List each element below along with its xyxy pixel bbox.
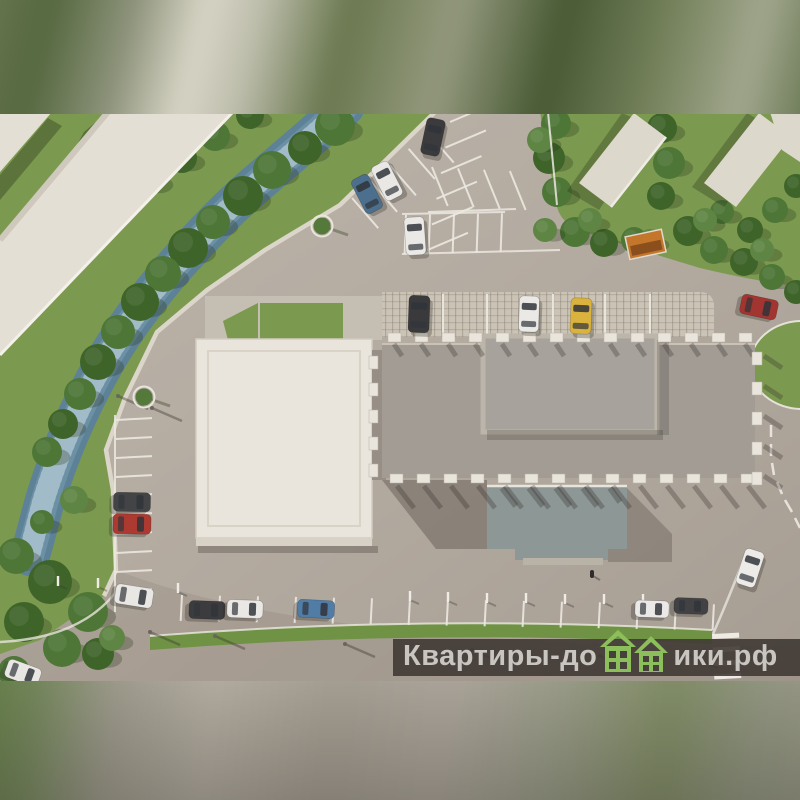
car-rear-window	[118, 495, 124, 509]
stall-line	[713, 604, 714, 630]
balcony-tab	[579, 474, 592, 483]
blurred-bottom-edge	[0, 681, 800, 800]
balcony-tab	[660, 474, 673, 483]
tree-highlight	[787, 282, 799, 294]
tree-highlight	[173, 232, 193, 252]
tree-highlight	[3, 542, 21, 560]
car-windshield	[249, 603, 256, 616]
car-windshield	[694, 601, 701, 612]
ring-tree	[314, 218, 331, 235]
car-windshield	[320, 603, 328, 616]
tree-highlight	[704, 239, 718, 253]
tree-highlight	[9, 606, 29, 626]
tree-highlight	[581, 210, 593, 222]
watermark-logo-houses-icon	[598, 624, 672, 676]
tree-highlight	[105, 318, 122, 335]
balcony-tab	[369, 383, 378, 396]
stall-line	[501, 213, 502, 252]
tree-highlight	[765, 200, 778, 213]
car-rear-window	[232, 602, 238, 615]
balcony-tab	[604, 333, 617, 342]
balcony-tab	[498, 474, 511, 483]
lawn-rect	[260, 303, 343, 340]
bollard	[97, 578, 99, 588]
bollard	[564, 594, 566, 604]
car	[404, 216, 430, 260]
tree-highlight	[33, 512, 45, 524]
balcony-tab	[712, 333, 725, 342]
balcony-tab	[752, 412, 762, 425]
blurred-top-edge	[0, 0, 800, 114]
bollard	[486, 593, 488, 603]
stall-line	[485, 600, 486, 626]
car-windshield	[407, 224, 422, 232]
bollard	[409, 591, 411, 601]
balcony-tab	[739, 333, 752, 342]
car-body	[674, 597, 709, 614]
watermark-text-left: Квартиры-до	[403, 642, 597, 671]
tree-highlight	[564, 220, 579, 235]
balcony-tab	[550, 333, 563, 342]
tree-highlight	[126, 287, 145, 306]
car-windshield	[137, 517, 144, 532]
balcony-tab	[606, 474, 619, 483]
car-rear-window	[640, 603, 646, 615]
tree-highlight	[536, 220, 548, 232]
balcony-tab	[752, 442, 762, 455]
tree-highlight	[52, 412, 67, 427]
car-windshield	[573, 305, 589, 313]
car	[518, 296, 542, 337]
tree-highlight	[34, 564, 56, 586]
car	[185, 600, 226, 622]
tree-highlight	[530, 130, 543, 143]
tree-highlight	[677, 219, 692, 234]
car-windshield	[522, 303, 537, 311]
tree-highlight	[696, 210, 708, 222]
stall-line	[181, 595, 182, 621]
stall-line	[561, 602, 562, 628]
tree-highlight	[734, 251, 748, 265]
balcony-tab	[685, 333, 698, 342]
tree-highlight	[753, 240, 765, 252]
bollard	[57, 576, 59, 586]
balcony-tab	[633, 474, 646, 483]
tree-highlight	[73, 596, 93, 616]
car-windshield	[411, 302, 427, 310]
balcony-tab	[552, 474, 565, 483]
tree-highlight	[85, 348, 103, 366]
tree-highlight	[762, 267, 775, 280]
tree-highlight	[228, 180, 248, 200]
tree-highlight	[36, 440, 51, 455]
stall-line	[523, 601, 524, 627]
stall-line	[477, 214, 478, 253]
tree-highlight	[48, 633, 67, 652]
car-rear-window	[408, 243, 423, 250]
tree-highlight	[651, 185, 665, 199]
tree-highlight	[657, 150, 673, 166]
white-building	[196, 339, 378, 553]
balcony-tab	[752, 352, 762, 365]
aerial-scene	[0, 0, 800, 800]
tree-highlight	[86, 641, 102, 657]
car	[631, 600, 670, 621]
bollard	[177, 583, 179, 593]
tree-highlight	[546, 180, 561, 195]
balcony-tab	[714, 474, 727, 483]
car	[109, 514, 151, 538]
balcony-tab	[369, 464, 378, 477]
tree-highlight	[740, 220, 753, 233]
car-body	[635, 600, 670, 618]
balcony-tab	[369, 437, 378, 450]
balcony-tab	[631, 333, 644, 342]
site-plan-render: Квартиры-до ики.рф	[0, 0, 800, 800]
lamp-post	[150, 406, 154, 410]
tree-highlight	[102, 628, 115, 641]
car-rear-window	[521, 321, 536, 328]
lamp-post	[343, 642, 347, 646]
car	[223, 599, 264, 621]
balcony-tab	[469, 333, 482, 342]
balcony-tab	[369, 410, 378, 423]
ring-tree	[136, 389, 153, 406]
tree-highlight	[787, 176, 799, 188]
lamp-post	[148, 630, 152, 634]
tree-highlight	[594, 232, 608, 246]
lamp-post	[116, 394, 120, 398]
watermark-banner: Квартиры-до ики.рф	[393, 639, 800, 676]
tree-highlight	[68, 381, 84, 397]
tree-highlight	[545, 112, 560, 127]
car-rear-window	[302, 602, 309, 615]
car-rear-window	[411, 321, 427, 328]
tree-highlight	[258, 155, 277, 174]
balcony-tab	[444, 474, 457, 483]
car	[670, 597, 709, 617]
tree-highlight	[64, 489, 78, 503]
tree-highlight	[150, 260, 168, 278]
balcony-tab	[752, 472, 762, 485]
tree-highlight	[292, 134, 309, 151]
car	[109, 492, 150, 515]
tree-highlight	[200, 208, 217, 225]
balcony-tab	[687, 474, 700, 483]
car-rear-window	[118, 516, 124, 531]
bollard	[603, 594, 605, 604]
lamp-post	[213, 634, 217, 638]
car-windshield	[211, 604, 218, 617]
car	[570, 298, 595, 339]
car-windshield	[136, 495, 143, 509]
stall-line	[453, 214, 454, 253]
balcony-tab	[752, 382, 762, 395]
bollard	[525, 593, 527, 603]
bollard	[447, 592, 449, 602]
stall-line	[371, 598, 372, 624]
stall-line	[409, 599, 410, 625]
car-rear-window	[573, 323, 589, 330]
balcony-tab	[369, 356, 378, 369]
car	[293, 599, 335, 622]
car-windshield	[655, 603, 662, 615]
balcony-tab	[390, 474, 403, 483]
car-rear-window	[679, 600, 685, 611]
balcony-tab	[388, 333, 401, 342]
car-rear-window	[194, 603, 200, 616]
watermark-text-right: ики.рф	[673, 642, 777, 671]
car	[408, 295, 433, 337]
balcony-tab	[496, 333, 509, 342]
balcony-tab	[442, 333, 455, 342]
balcony-tab	[417, 474, 430, 483]
balcony-tab	[658, 333, 671, 342]
stall-line	[447, 600, 448, 626]
balcony-tab	[525, 474, 538, 483]
balcony-tab	[471, 474, 484, 483]
